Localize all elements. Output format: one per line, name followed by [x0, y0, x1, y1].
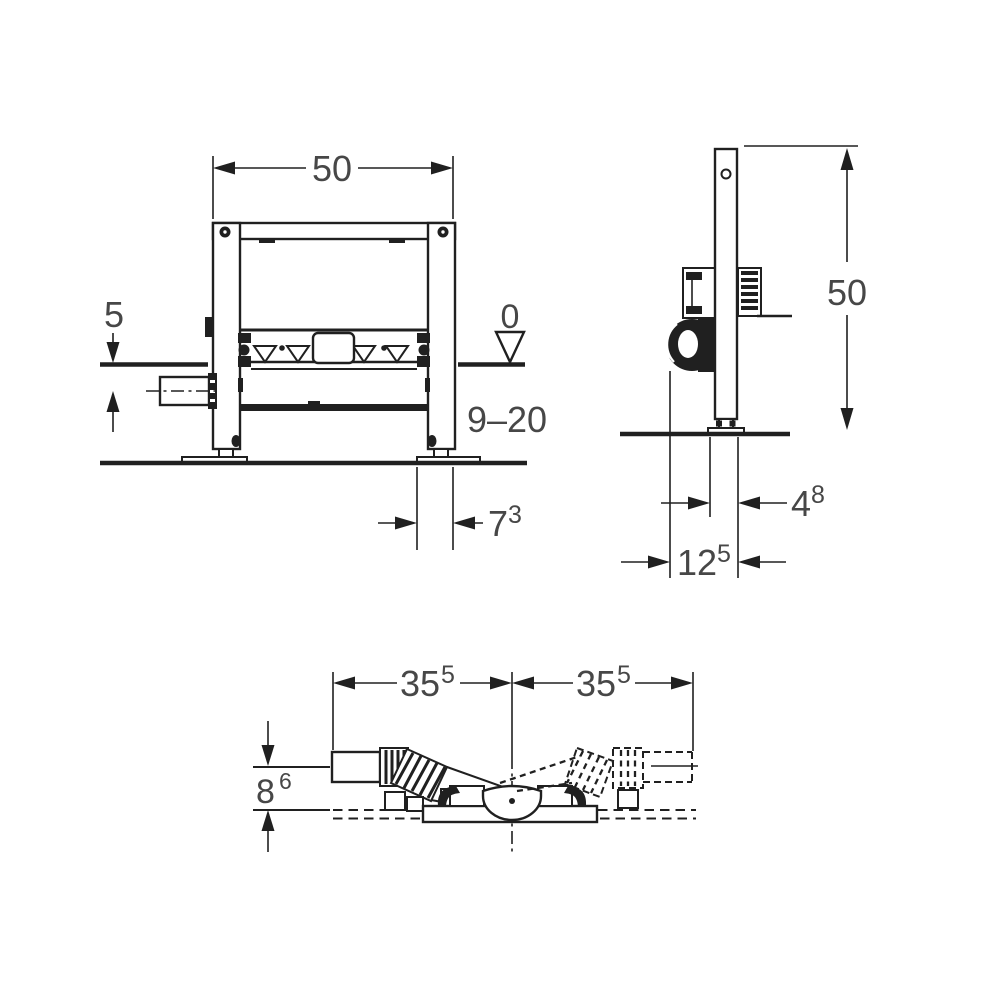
front-frame — [182, 223, 480, 463]
front-foot-offset-sup: 3 — [508, 501, 522, 529]
dim-arrow — [490, 677, 512, 690]
dim-arrow — [738, 497, 760, 510]
dim-arrow — [107, 391, 120, 412]
front-depth-range-label: 9–20 — [467, 399, 547, 440]
side-height-label: 50 — [827, 272, 867, 313]
dim-arrow — [213, 162, 235, 175]
dim-arrow — [395, 517, 417, 530]
channel-notch-icon — [386, 346, 408, 362]
plan-right-half-sup: 5 — [617, 661, 631, 689]
front-support-channel — [238, 330, 430, 392]
plan-drain-body — [423, 786, 597, 822]
dim-arrow — [671, 677, 693, 690]
dim-arrow — [333, 677, 355, 690]
front-top-crossbar — [213, 223, 455, 239]
front-floor-offset-label: 5 — [104, 294, 124, 335]
plan-axis-offset-main: 8 — [256, 773, 275, 811]
plan-right-half-main: 35 — [576, 663, 616, 704]
side-rail-depth-main: 4 — [791, 483, 811, 524]
dim-arrow — [262, 745, 275, 766]
dim-arrow — [431, 162, 453, 175]
front-view: 50 — [100, 148, 547, 550]
dim-arrow — [512, 677, 534, 690]
side-rail-body — [715, 149, 737, 419]
side-outlet-offset-sup: 5 — [717, 540, 731, 568]
front-left-rail — [213, 223, 240, 449]
plan-dashed-pipe-body — [643, 752, 692, 782]
side-rail-depth-dimension: 4 8 — [661, 481, 825, 524]
front-foot-offset-dimension: 7 3 — [378, 467, 522, 550]
plan-axis-offset-dimension: 8 6 — [253, 721, 330, 852]
dim-arrow — [841, 148, 854, 170]
dim-arrow — [738, 556, 760, 569]
front-floor-offset-dimension: 5 — [100, 294, 208, 432]
dim-arrow — [688, 497, 710, 510]
dim-arrow — [648, 556, 670, 569]
plan-left-foot-plate — [385, 792, 405, 810]
dim-arrow — [841, 408, 854, 430]
side-outlet-offset-main: 12 — [677, 542, 717, 583]
side-view: 50 — [620, 146, 867, 583]
channel-notch-icon — [254, 346, 276, 362]
technical-drawing-page: 50 — [0, 0, 990, 990]
plan-view: 35 5 35 5 8 6 — [253, 661, 698, 853]
side-rail-depth-sup: 8 — [811, 481, 825, 509]
channel-notch-icon — [353, 346, 375, 362]
rail-hole-icon — [722, 170, 731, 179]
side-outlet-offset-dimension: 12 5 — [621, 540, 786, 583]
dim-arrow — [107, 342, 120, 363]
plan-left-half-main: 35 — [400, 663, 440, 704]
front-drain-pipe — [146, 373, 221, 409]
front-bottom-crossbar — [240, 404, 428, 411]
front-right-rail — [428, 223, 455, 449]
front-width-dimension: 50 — [213, 148, 453, 219]
plan-drain-center-point — [509, 798, 515, 804]
side-height-dimension: 50 — [744, 146, 867, 430]
dim-arrow — [453, 517, 475, 530]
plan-axis-offset-sup: 6 — [279, 768, 292, 794]
plan-pipe-body — [332, 752, 380, 782]
front-width-label: 50 — [312, 148, 352, 189]
plan-right-foot-plate — [618, 790, 638, 808]
dim-arrow — [262, 810, 275, 831]
channel-center-plate — [313, 333, 354, 363]
front-pipe-lug — [205, 317, 214, 337]
plan-left-half-sup: 5 — [441, 661, 455, 689]
datum-triangle-icon — [496, 332, 524, 362]
front-foot-offset-main: 7 — [488, 503, 508, 544]
installation-drawing: 50 — [0, 0, 990, 990]
front-datum-zero-label: 0 — [501, 298, 520, 336]
front-datum-marker: 0 — [458, 298, 525, 365]
channel-notch-icon — [287, 346, 309, 362]
